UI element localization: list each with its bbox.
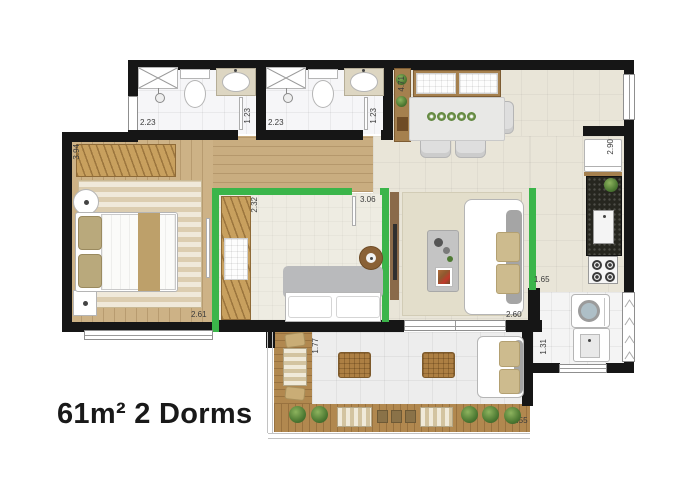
dim-service-depth: 1.31 xyxy=(540,339,548,355)
wall-bath-bottom-1 xyxy=(128,130,238,140)
shower-box xyxy=(138,67,178,89)
plant-icon xyxy=(311,406,328,423)
wall-service-bottom-1 xyxy=(533,363,560,373)
bed-runner xyxy=(138,213,160,291)
plant-icon xyxy=(604,178,618,192)
bed2-pillow xyxy=(336,296,380,318)
wall-bath-bottom-3 xyxy=(381,130,393,140)
deck-pot xyxy=(377,410,388,423)
balcony-sofa-cushion xyxy=(499,341,520,367)
shower-head-icon xyxy=(283,93,293,103)
bath1-shaft xyxy=(128,96,138,132)
service-window xyxy=(559,364,607,373)
bathroom2-door-leaf xyxy=(364,97,368,130)
tv-icon xyxy=(393,224,397,280)
shower-head-icon xyxy=(155,93,165,103)
wicker-pouf xyxy=(338,352,371,378)
kitchen-window xyxy=(623,74,635,120)
shower-box xyxy=(266,67,306,89)
dim-dining-depth: 4.71 xyxy=(398,76,406,92)
side-table xyxy=(359,246,383,270)
service-door xyxy=(622,292,635,362)
dim-bathroom2-width: 2.23 xyxy=(268,119,284,127)
banquette-cushion xyxy=(459,73,498,94)
toilet-bowl xyxy=(184,80,206,108)
fridge xyxy=(584,139,622,172)
deck-bench xyxy=(337,407,372,427)
plant-icon xyxy=(504,407,521,424)
stove xyxy=(588,256,618,284)
kitchen-sink xyxy=(593,210,614,244)
bed-pillow xyxy=(78,216,102,250)
louver-marks-icon xyxy=(623,293,636,363)
green-wall-bedroom2-right xyxy=(382,188,389,322)
deck-pot xyxy=(405,410,416,423)
wall-bedroom1-left xyxy=(62,132,72,332)
dim-bathroom1-depth: 1.23 xyxy=(244,108,252,124)
wicker-pouf xyxy=(422,352,455,378)
plant-icon xyxy=(482,406,499,423)
dim-bathroom1-width: 2.23 xyxy=(140,119,156,127)
faucet-icon xyxy=(362,69,365,72)
balcony-railing-left xyxy=(267,332,273,433)
bedroom2-door-leaf xyxy=(352,196,356,226)
green-wall-bedroom2-left xyxy=(212,188,219,332)
bedroom1-wardrobe xyxy=(76,144,176,177)
washing-machine xyxy=(571,294,610,328)
flower-centerpiece xyxy=(427,112,483,124)
wall-bath1-left xyxy=(128,60,138,98)
coffee-table xyxy=(427,230,459,292)
dim-living-width: 2.60 xyxy=(506,311,522,319)
toilet-tank xyxy=(308,69,338,79)
deck-bench xyxy=(420,407,453,427)
dim-balcony-depth: 1.77 xyxy=(312,338,320,354)
dim-bedroom2-width: 3.06 xyxy=(360,196,376,204)
balcony-sliding-door xyxy=(404,320,506,331)
shower-x-icon xyxy=(139,68,177,88)
floorplan-canvas: 4.55 2.23 1.23 2.23 1.23 3.94 2.61 2.32 … xyxy=(0,0,700,500)
dim-bathroom2-depth: 1.23 xyxy=(370,108,378,124)
plant-icon xyxy=(289,406,306,423)
toilet-tank xyxy=(180,69,210,79)
bedroom1-window xyxy=(84,330,213,340)
toilet-bowl xyxy=(312,80,334,108)
dim-bedroom1-depth: 3.94 xyxy=(73,144,81,160)
nightstand xyxy=(73,290,97,316)
plant-icon xyxy=(461,406,478,423)
bed-pillow xyxy=(78,254,102,288)
dim-bedroom2-depth: 2.32 xyxy=(251,197,259,213)
sofa-cushion xyxy=(496,264,520,294)
balcony-sofa-cushion xyxy=(499,369,520,394)
sofa-cushion xyxy=(496,232,520,262)
plan-title: 61m² 2 Dorms xyxy=(57,398,252,431)
bedroom1-door-leaf xyxy=(206,218,210,278)
vanity-sink xyxy=(222,72,250,92)
dim-living-depth: 1.65 xyxy=(534,276,550,284)
wall-bath2-right xyxy=(383,60,393,140)
balcony-pillow xyxy=(284,386,305,401)
bed2-pillow xyxy=(288,296,332,318)
shower-arm-icon xyxy=(158,88,159,94)
wall-bath-bottom-2 xyxy=(256,130,363,140)
banquette-cushion xyxy=(416,73,456,94)
corridor-floor xyxy=(213,136,373,192)
wardrobe-drawers xyxy=(224,238,248,280)
balcony-bench xyxy=(283,348,307,386)
shower-x-icon xyxy=(267,68,305,88)
faucet-icon xyxy=(234,69,237,72)
green-wall-bedroom2-top xyxy=(212,188,352,195)
dim-kitchen-depth: 2.90 xyxy=(607,139,615,155)
shower-arm-icon xyxy=(286,88,287,94)
vanity-sink xyxy=(350,72,378,92)
wall-service-bottom-2 xyxy=(606,363,634,373)
plant-icon xyxy=(396,96,407,107)
wall-living-right-corner xyxy=(528,288,540,332)
balcony-railing-bottom xyxy=(268,433,530,439)
wall-bath-divider xyxy=(256,60,266,140)
balcony-pillow xyxy=(284,332,306,349)
dim-bedroom1-width: 2.61 xyxy=(191,311,207,319)
wall-bedroom1-top xyxy=(62,132,138,142)
deck-pot xyxy=(391,410,402,423)
wall-kitchen-top xyxy=(583,126,634,136)
laundry-tank xyxy=(573,328,610,362)
